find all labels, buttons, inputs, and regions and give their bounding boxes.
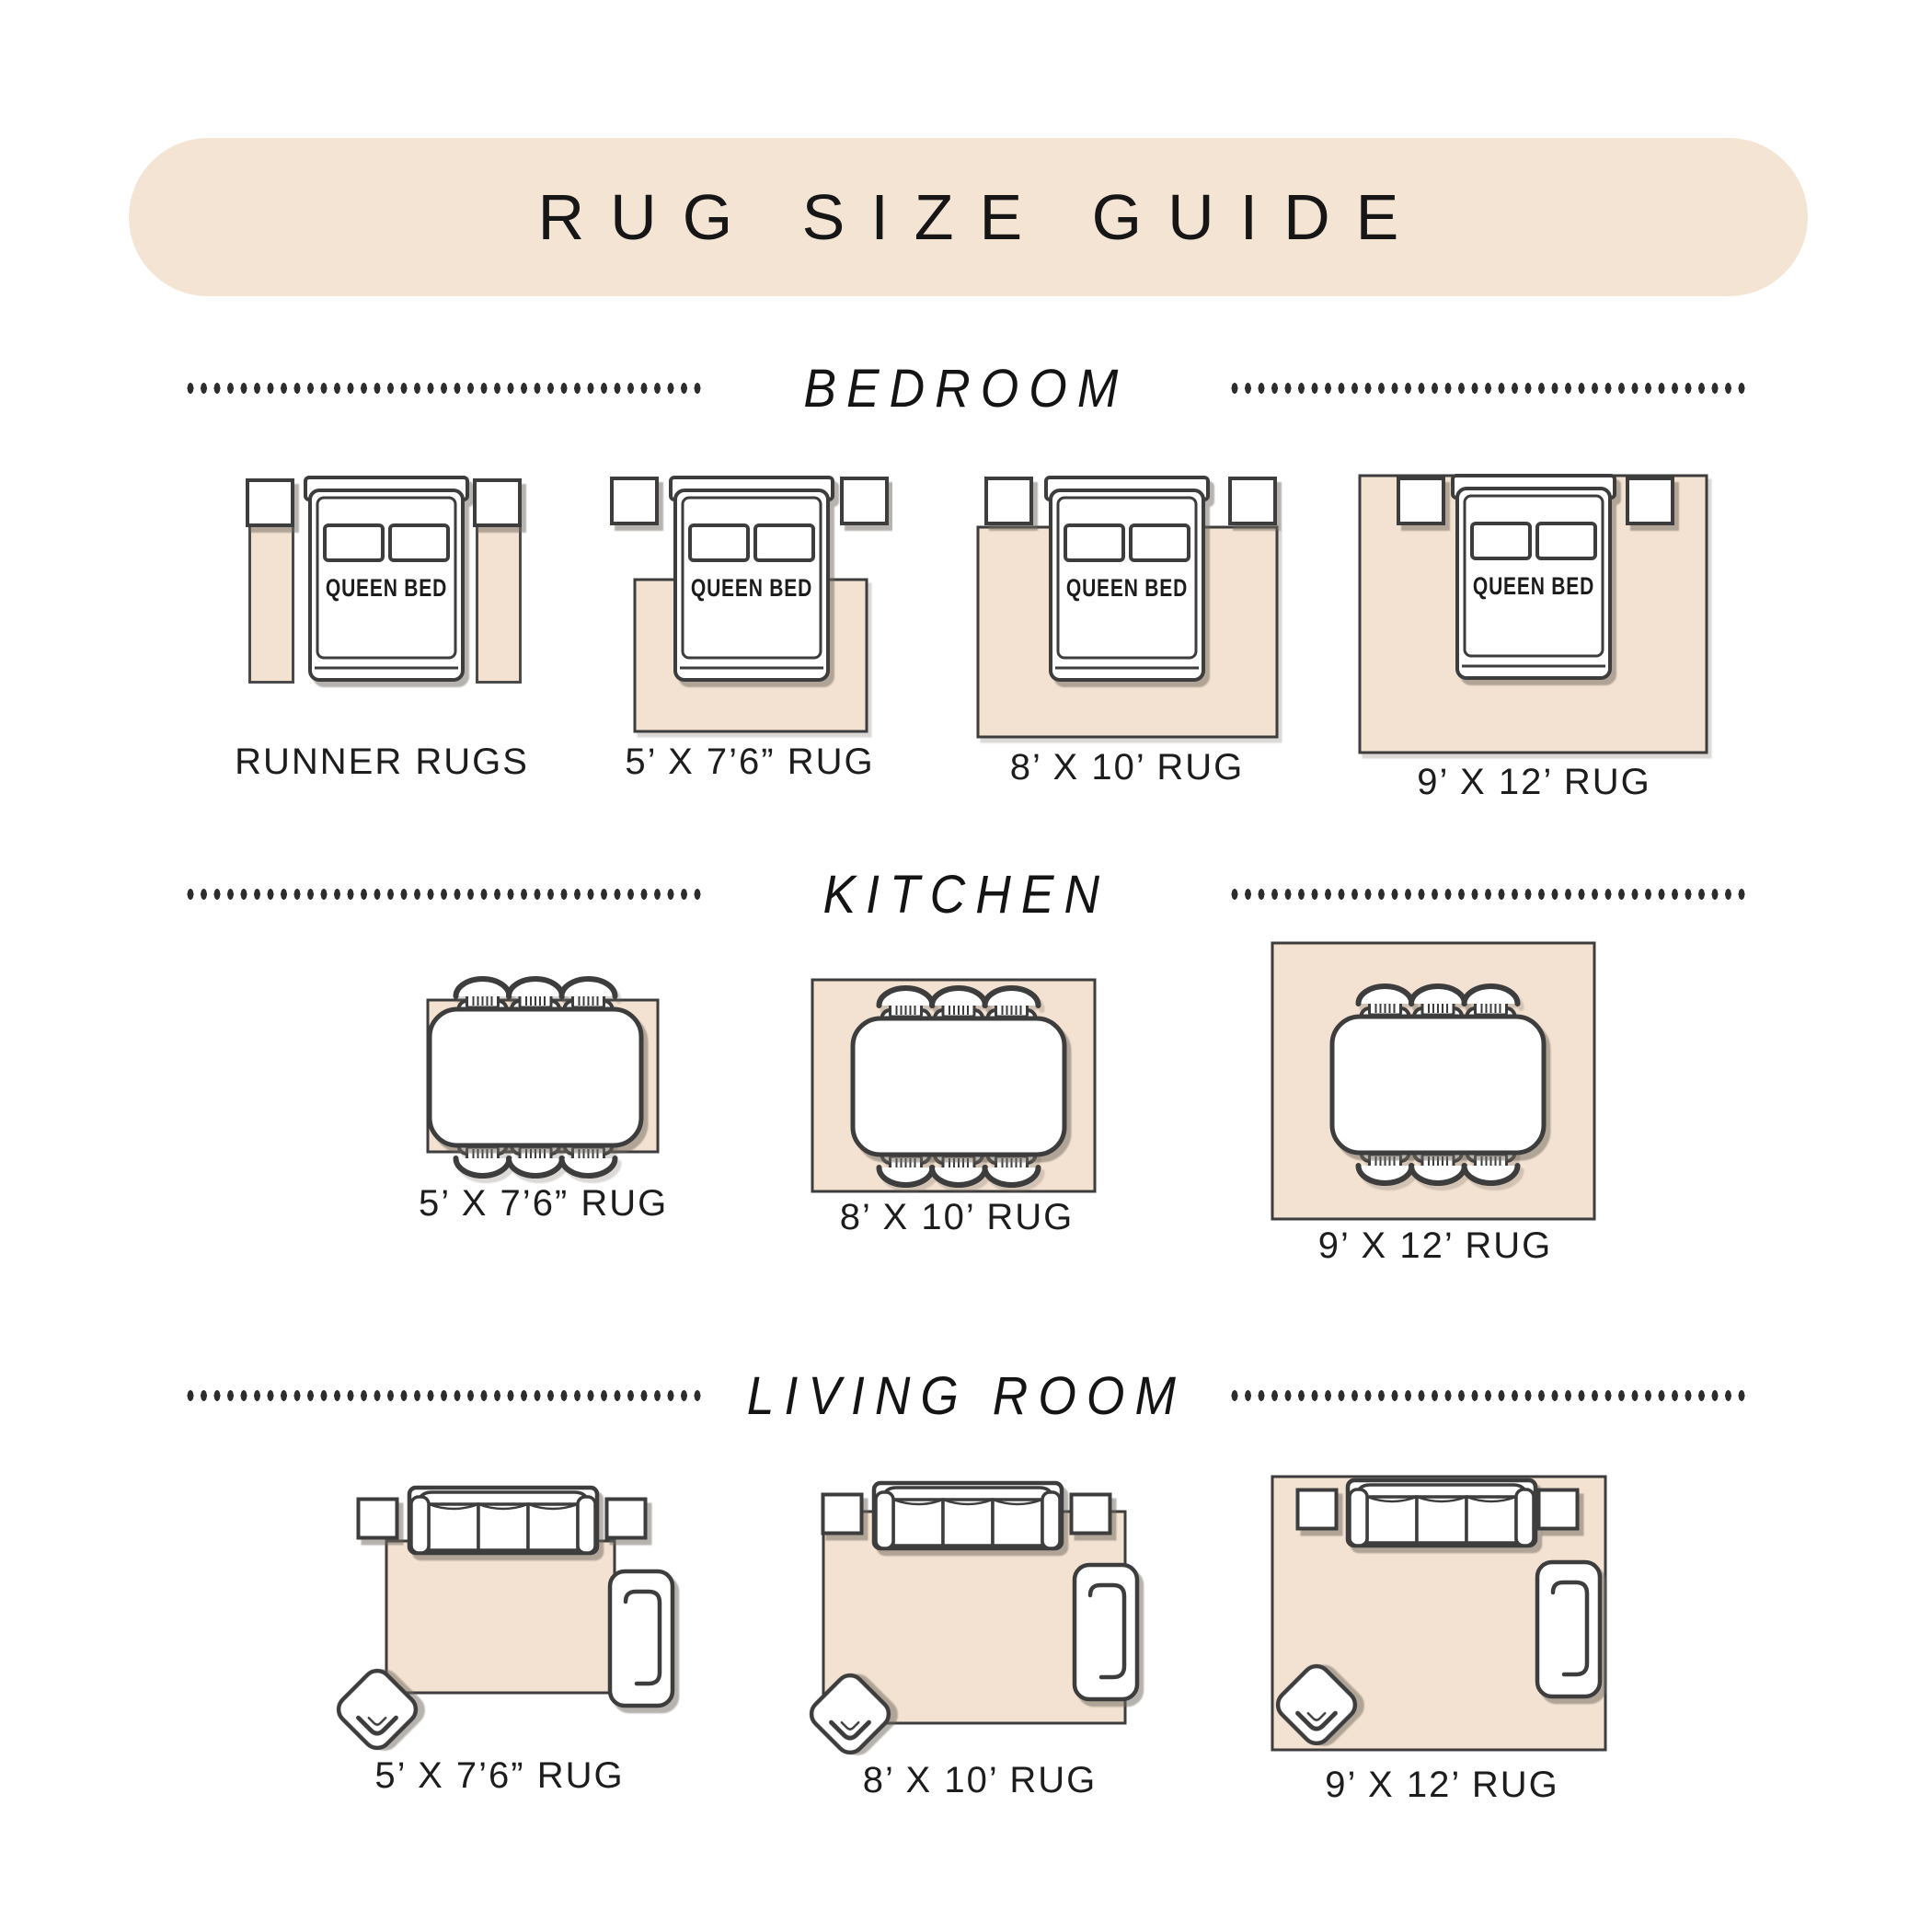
bed-label: QUEEN BED [1066,575,1188,603]
diagram-label: 5’ X 7’6” RUG [320,1755,679,1797]
nightstand-icon [842,478,887,523]
diagram-label: 9’ X 12’ RUG [1265,1225,1605,1267]
diagram-label: 8’ X 10’ RUG [805,1197,1109,1238]
diagram-label: 5’ X 7’6” RUG [607,742,892,783]
rug-size-guide-page: RUG SIZE GUIDE BEDROOM QUEEN BED RUNNER … [0,0,1932,1932]
diagram-label: 8’ X 10’ RUG [971,747,1283,788]
nightstand-icon [1627,478,1673,523]
page-title: RUG SIZE GUIDE [512,180,1425,254]
chaise-icon [1537,1562,1600,1696]
nightstand-icon [612,478,657,523]
nightstand-icon [475,480,520,525]
rug-icon [386,1541,615,1693]
diagram-label: 9’ X 12’ RUG [1265,1765,1619,1806]
diagram-bedroom-5x76: QUEEN BED [607,460,892,754]
runner-rug-icon [250,522,293,683]
diagram-kitchen-5x76 [419,961,667,1191]
runner-rug-icon [477,522,521,683]
bed-label: QUEEN BED [1473,573,1594,601]
section-title-bedroom: BEDROOM [0,356,1932,420]
diagram-bedroom-runner-rugs: QUEEN BED [230,460,534,782]
side-table-icon [1072,1495,1110,1534]
title-banner: RUG SIZE GUIDE [129,138,1808,296]
diagram-living-room-8x10 [800,1463,1164,1771]
section-title-living-room: LIVING ROOM [0,1363,1932,1428]
sofa-icon [874,1483,1062,1548]
section-header-bedroom: BEDROOM [0,356,1932,420]
chaise-icon [610,1571,673,1706]
diagram-label: 5’ X 7’6” RUG [419,1183,667,1225]
chaise-icon [1075,1565,1137,1699]
section-header-kitchen: KITCHEN [0,862,1932,926]
sofa-icon [1348,1480,1535,1546]
section-header-living-room: LIVING ROOM [0,1363,1932,1428]
sofa-icon [409,1488,597,1553]
diagram-bedroom-9x12: QUEEN BED [1352,458,1716,771]
side-table-icon [607,1500,646,1538]
diagram-kitchen-9x12 [1265,934,1605,1237]
diagram-label: 8’ X 10’ RUG [800,1760,1159,1801]
side-table-icon [1298,1490,1337,1529]
diagram-label: 9’ X 12’ RUG [1352,762,1716,803]
diagram-living-room-5x76 [331,1467,695,1771]
diagram-label: RUNNER RUGS [230,742,534,783]
side-table-icon [359,1500,397,1538]
nightstand-icon [986,478,1031,523]
bed-label: QUEEN BED [691,575,812,603]
diagram-bedroom-8x10: QUEEN BED [971,460,1283,764]
nightstand-icon [1398,478,1443,523]
diagram-kitchen-8x10 [805,952,1109,1210]
dining-table-and-chairs-icon [430,979,641,1176]
dining-table-and-chairs-icon [1332,986,1544,1183]
dining-table-and-chairs-icon [853,988,1064,1185]
nightstand-icon [1230,478,1275,523]
side-table-icon [1539,1490,1578,1529]
nightstand-icon [247,480,293,525]
side-table-icon [823,1495,862,1534]
section-title-kitchen: KITCHEN [0,862,1932,926]
bed-label: QUEEN BED [326,575,447,603]
diagram-living-room-9x12 [1265,1463,1619,1766]
